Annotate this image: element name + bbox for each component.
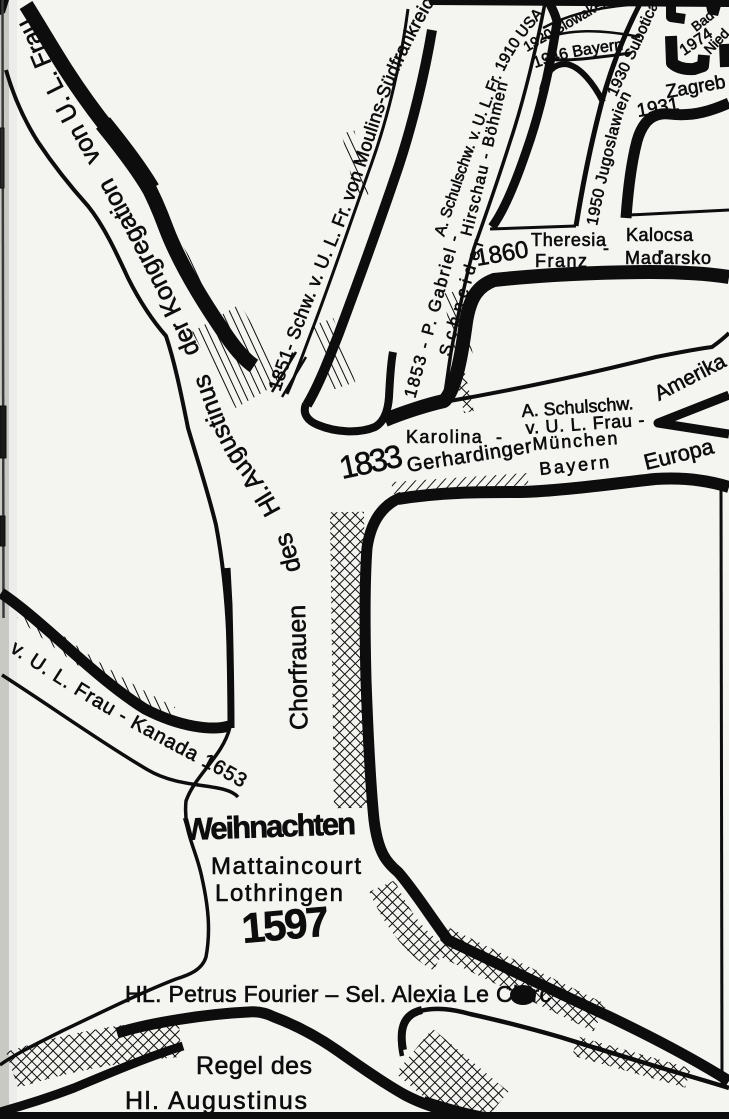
- svg-text:HL. Petrus Fourier – Sel. Alex: HL. Petrus Fourier – Sel. Alexia Le Cler…: [125, 981, 551, 1007]
- svg-text:1597: 1597: [240, 898, 330, 952]
- svg-text:Chorfrauen: Chorfrauen: [283, 605, 314, 731]
- svg-text:Franz: Franz: [535, 251, 587, 271]
- svg-text:Regel des: Regel des: [196, 1052, 312, 1080]
- svg-text:Theresia: Theresia: [531, 230, 607, 250]
- svg-text:-: -: [603, 238, 609, 258]
- svg-text:Weihnachten: Weihnachten: [183, 806, 356, 847]
- svg-text:Kalocsa: Kalocsa: [626, 225, 694, 245]
- svg-text:Mattaincourt: Mattaincourt: [211, 853, 361, 880]
- svg-text:Maďarsko: Maďarsko: [625, 248, 711, 268]
